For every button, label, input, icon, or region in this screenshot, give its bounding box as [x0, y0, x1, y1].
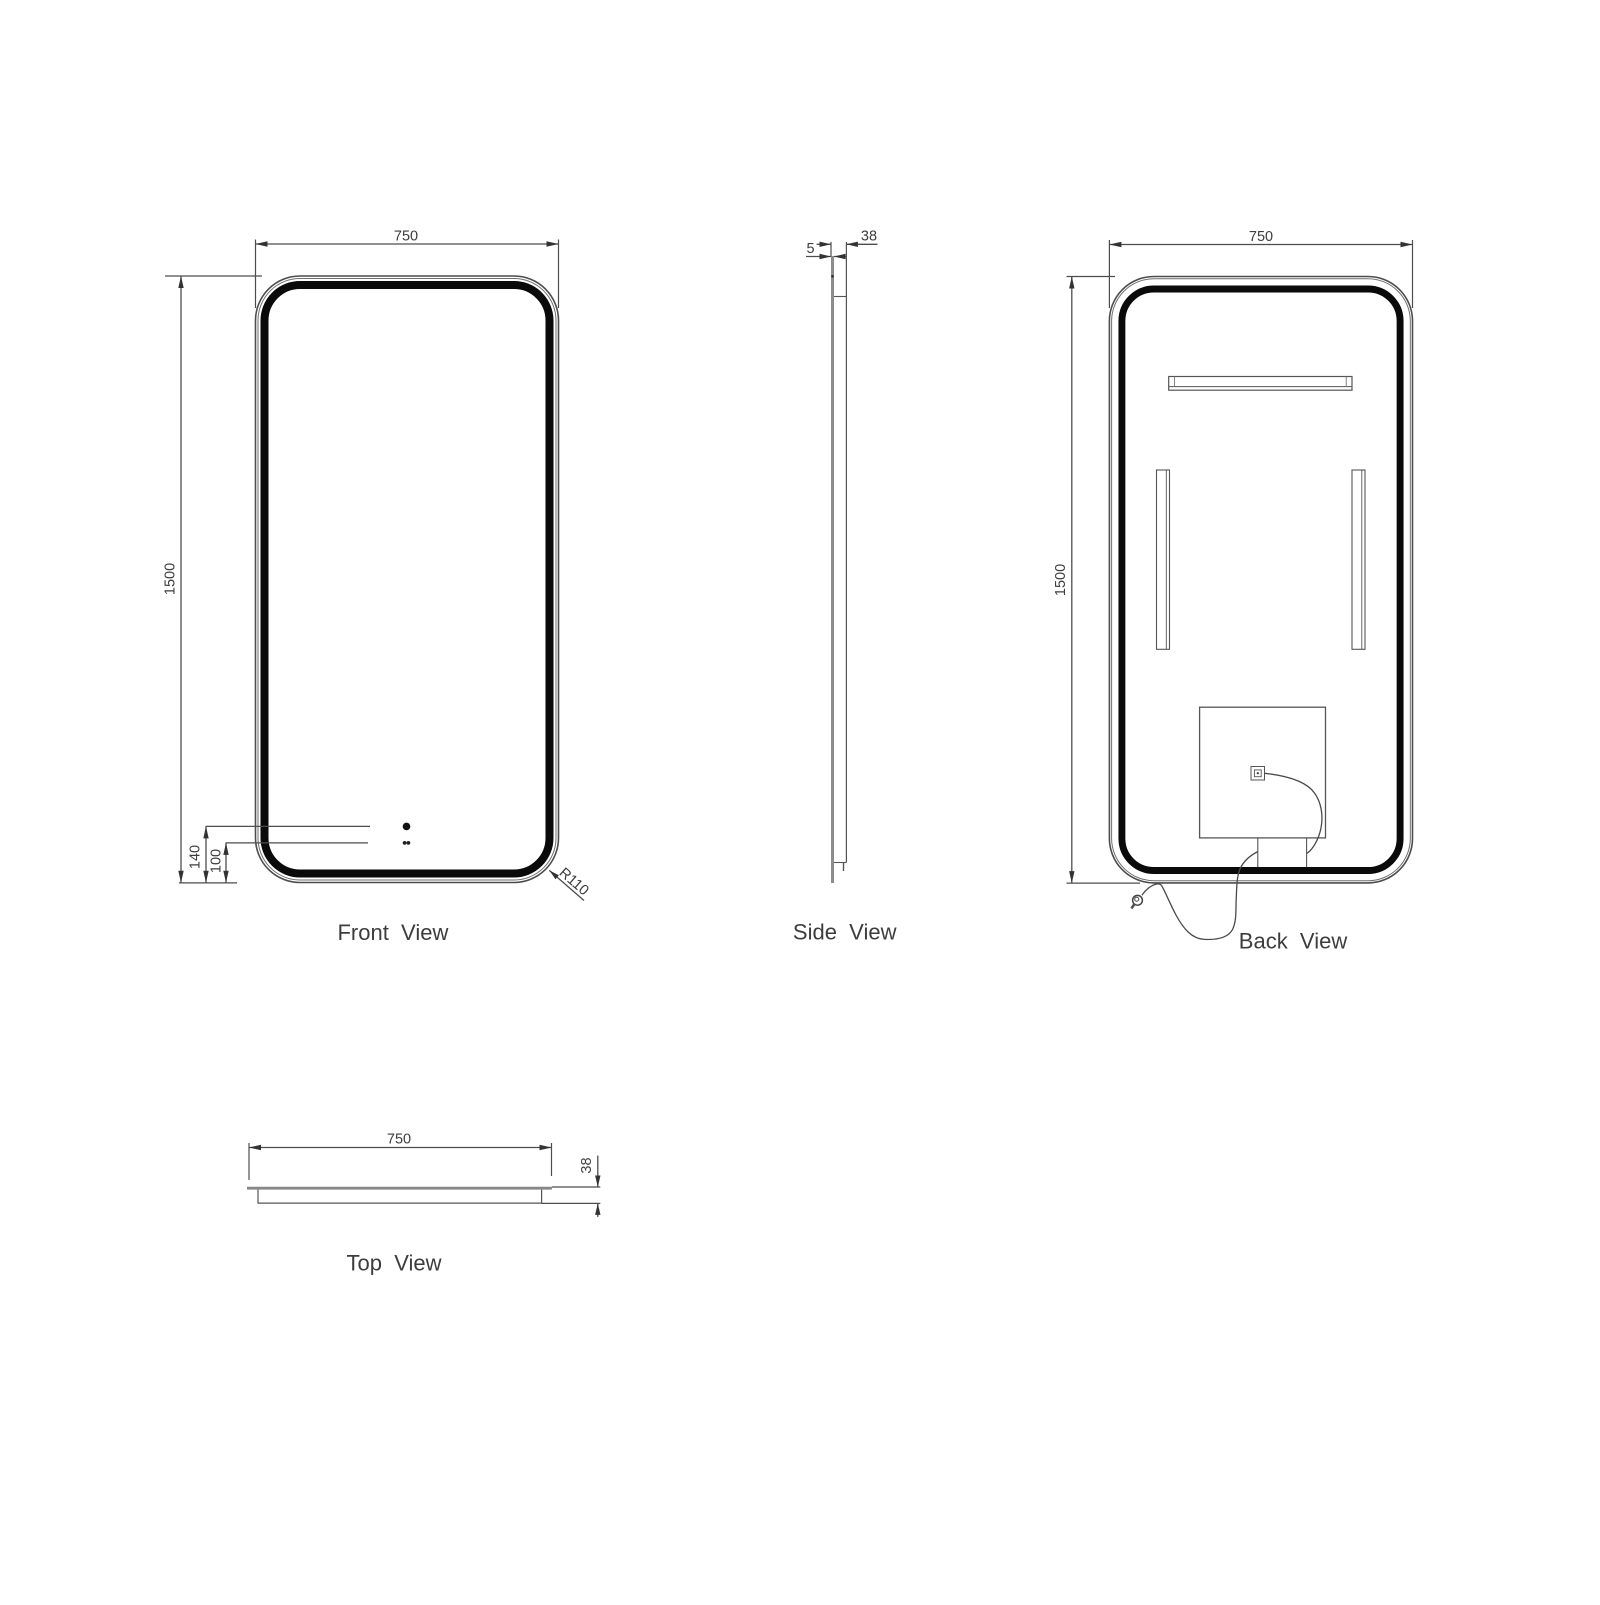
svg-text:Top View: Top View	[347, 1250, 442, 1275]
svg-text:Side View: Side View	[793, 920, 897, 945]
svg-text:750: 750	[1249, 229, 1273, 245]
svg-text:38: 38	[579, 1157, 595, 1173]
svg-text:750: 750	[394, 229, 418, 245]
svg-text:750: 750	[387, 1132, 411, 1148]
svg-text:5: 5	[806, 241, 814, 257]
svg-text:1500: 1500	[1053, 564, 1069, 596]
svg-text:Back View: Back View	[1239, 929, 1348, 954]
svg-text:Front View: Front View	[337, 920, 448, 945]
svg-text:38: 38	[861, 229, 877, 245]
svg-text:100: 100	[209, 849, 225, 873]
svg-text:140: 140	[188, 845, 204, 869]
svg-text:1500: 1500	[163, 563, 179, 595]
